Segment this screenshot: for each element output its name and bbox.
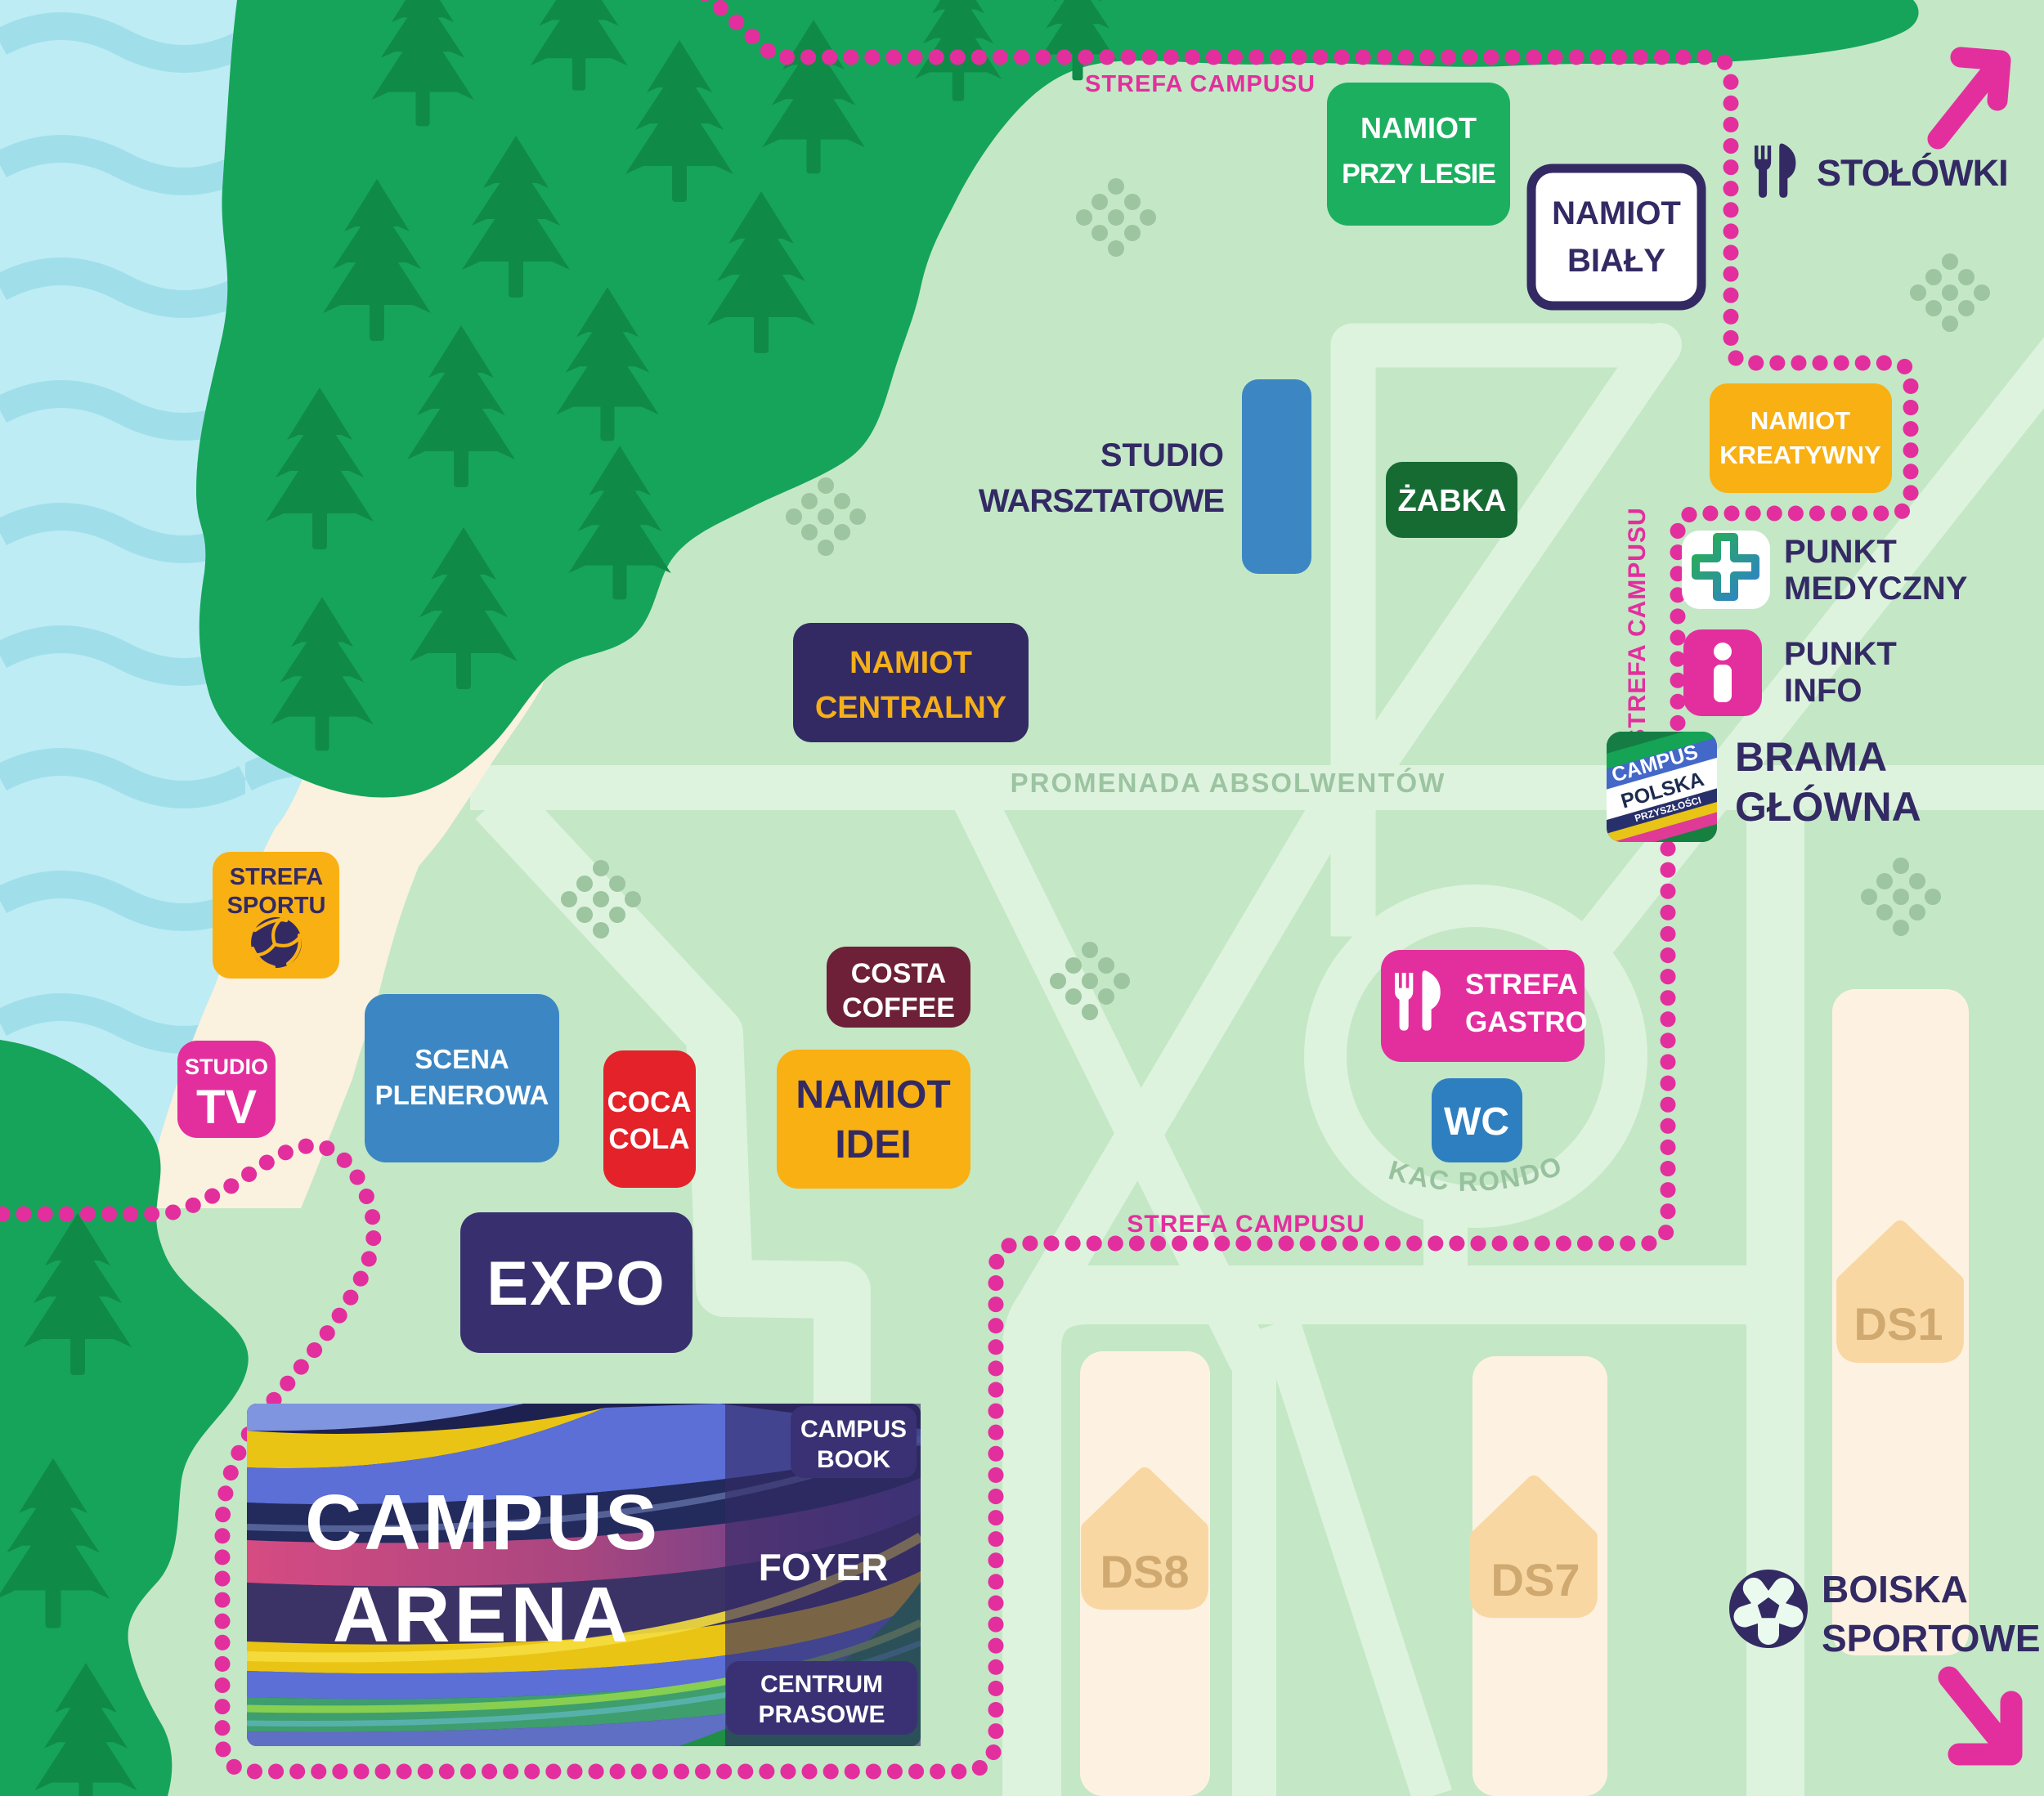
svg-text:SCENA: SCENA: [415, 1044, 509, 1074]
svg-text:GŁÓWNA: GŁÓWNA: [1735, 784, 1921, 830]
svg-text:WC: WC: [1444, 1100, 1509, 1144]
svg-text:CENTRUM: CENTRUM: [760, 1671, 883, 1698]
svg-text:BIAŁY: BIAŁY: [1567, 243, 1665, 279]
svg-text:STREFA CAMPUSU: STREFA CAMPUSU: [1085, 71, 1316, 97]
svg-text:PRZY LESIE: PRZY LESIE: [1342, 159, 1495, 190]
svg-text:BOISKA: BOISKA: [1822, 1568, 1968, 1610]
svg-text:COSTA: COSTA: [851, 958, 946, 989]
svg-text:STOŁÓWKI: STOŁÓWKI: [1817, 152, 2008, 194]
svg-text:BOOK: BOOK: [817, 1446, 890, 1473]
svg-text:STUDIO: STUDIO: [185, 1055, 268, 1079]
svg-text:COLA: COLA: [608, 1123, 689, 1155]
svg-text:GASTRO: GASTRO: [1465, 1006, 1588, 1038]
svg-text:MEDYCZNY: MEDYCZNY: [1784, 571, 1968, 607]
svg-text:STUDIO: STUDIO: [1100, 437, 1224, 473]
svg-text:PUNKT: PUNKT: [1784, 534, 1897, 570]
svg-text:NAMIOT: NAMIOT: [796, 1073, 950, 1117]
svg-text:SPORTU: SPORTU: [227, 893, 326, 919]
svg-text:CENTRALNY: CENTRALNY: [815, 691, 1006, 725]
svg-text:PROMENADA ABSOLWENTÓW: PROMENADA ABSOLWENTÓW: [1011, 768, 1446, 798]
svg-text:COCA: COCA: [607, 1086, 691, 1118]
svg-text:EXPO: EXPO: [486, 1249, 666, 1319]
svg-text:NAMIOT: NAMIOT: [1360, 111, 1477, 145]
svg-text:DS1: DS1: [1854, 1298, 1943, 1350]
svg-text:IDEI: IDEI: [835, 1123, 911, 1167]
svg-text:FOYER: FOYER: [759, 1546, 888, 1588]
svg-text:PUNKT: PUNKT: [1784, 636, 1897, 672]
svg-text:TV: TV: [196, 1081, 257, 1134]
svg-text:SPORTOWE: SPORTOWE: [1822, 1617, 2041, 1659]
svg-text:STREFA: STREFA: [230, 864, 323, 890]
svg-text:PRASOWE: PRASOWE: [758, 1701, 885, 1728]
svg-text:CAMPUS: CAMPUS: [800, 1416, 907, 1443]
svg-text:DS7: DS7: [1491, 1554, 1580, 1606]
svg-text:ŻABKA: ŻABKA: [1398, 484, 1507, 518]
svg-text:STREFA CAMPUSU: STREFA CAMPUSU: [1127, 1211, 1365, 1238]
svg-text:NAMIOT: NAMIOT: [1750, 406, 1850, 435]
svg-text:BRAMA: BRAMA: [1735, 734, 1887, 780]
svg-text:DS8: DS8: [1100, 1546, 1190, 1597]
svg-text:INFO: INFO: [1784, 673, 1862, 709]
svg-text:PLENEROWA: PLENEROWA: [375, 1080, 549, 1110]
svg-text:KREATYWNY: KREATYWNY: [1719, 441, 1881, 469]
svg-text:CAMPUS: CAMPUS: [305, 1479, 660, 1566]
svg-text:NAMIOT: NAMIOT: [849, 646, 972, 680]
svg-text:ARENA: ARENA: [333, 1571, 632, 1659]
svg-text:COFFEE: COFFEE: [842, 992, 955, 1023]
svg-text:STREFA: STREFA: [1465, 969, 1578, 1001]
svg-text:STREFA CAMPUSU: STREFA CAMPUSU: [1624, 507, 1651, 745]
svg-text:NAMIOT: NAMIOT: [1552, 195, 1681, 231]
svg-text:WARSZTATOWE: WARSZTATOWE: [979, 483, 1224, 519]
